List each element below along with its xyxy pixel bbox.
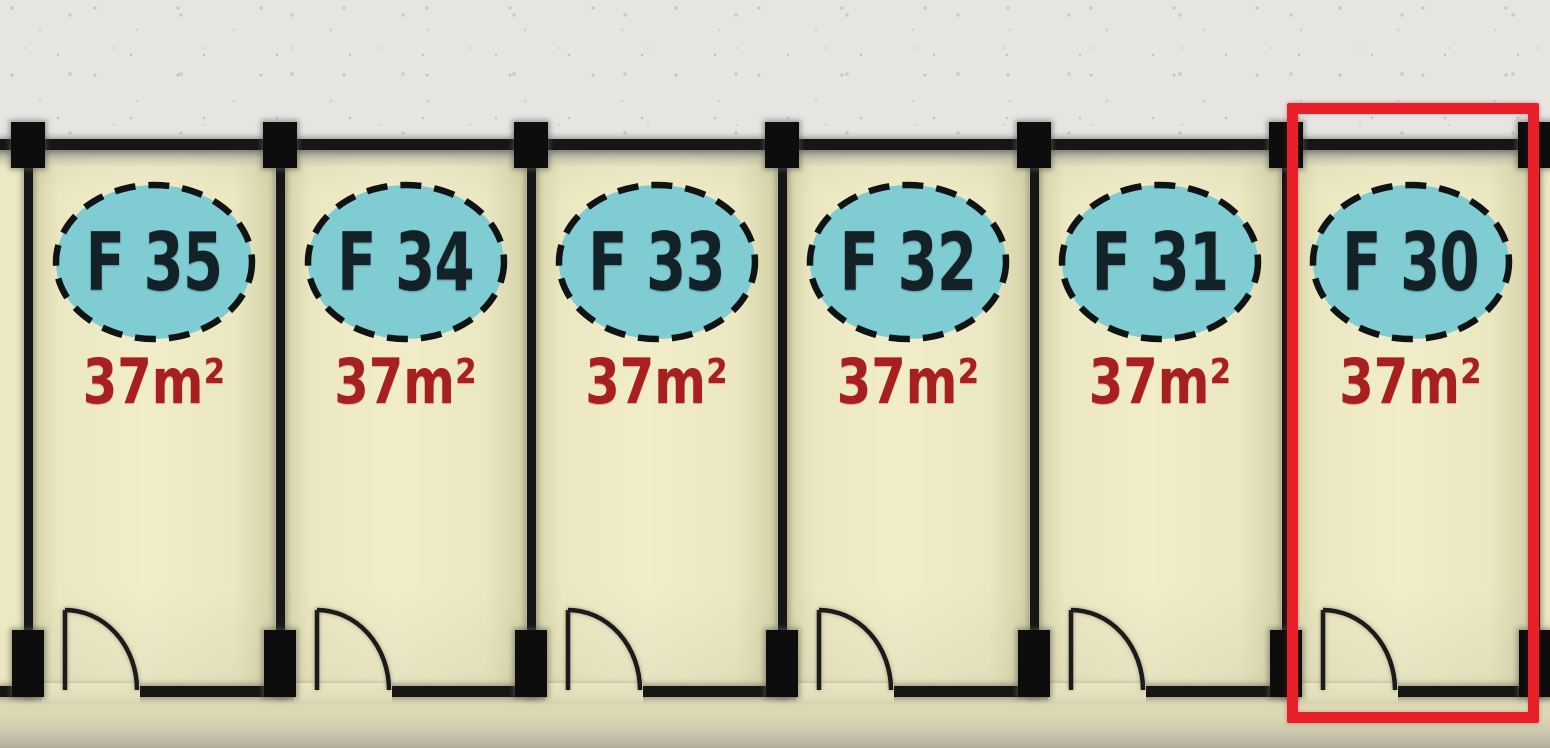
wall-post-bottom [766, 630, 798, 697]
wall-post-bottom [1018, 630, 1050, 697]
wall-post-bottom [515, 630, 547, 697]
interior-wall [778, 141, 787, 697]
interior-wall [276, 141, 285, 697]
interior-wall [24, 141, 33, 697]
door-swing-icon [1061, 606, 1153, 692]
wall-post-top [1017, 122, 1051, 168]
wall-post-top [514, 122, 548, 168]
interior-wall [1030, 141, 1039, 697]
selected-unit-highlight [1287, 103, 1539, 723]
wall-post-top [11, 122, 45, 168]
floor-plan: F 35 37m² F 34 37m² F 33 37m² F 32 37m² … [0, 0, 1550, 748]
door-swing-icon [55, 606, 147, 692]
wall-post-top [765, 122, 799, 168]
door-swing-icon [558, 606, 650, 692]
wall-post-bottom [12, 630, 44, 697]
interior-wall [527, 141, 536, 697]
door-swing-icon [307, 606, 399, 692]
door-swing-icon [809, 606, 901, 692]
wall-post-bottom [264, 630, 296, 697]
wall-post-top [263, 122, 297, 168]
